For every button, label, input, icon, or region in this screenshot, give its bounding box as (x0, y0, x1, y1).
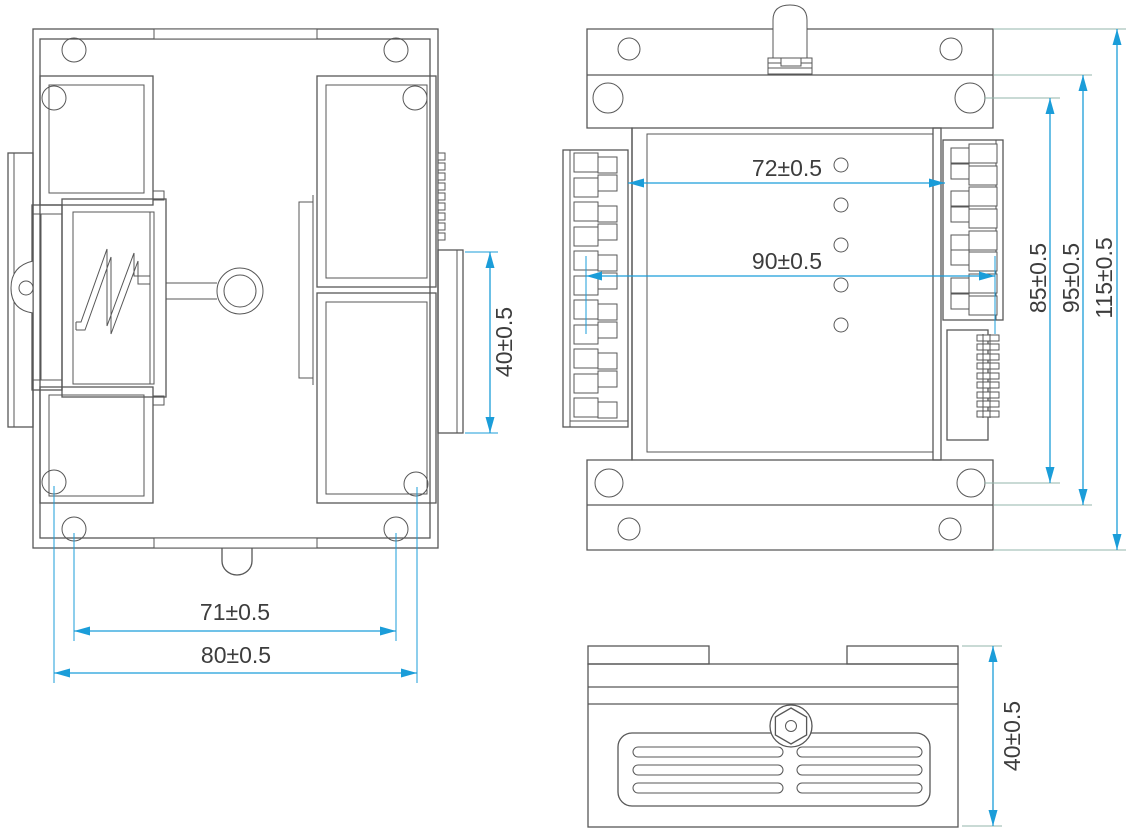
din-foot-right (847, 646, 958, 664)
spring-housing (62, 191, 166, 405)
din-foot-left (588, 646, 709, 664)
dim-label-40-height: 40±0.5 (999, 701, 1025, 771)
antenna-nut (770, 705, 812, 747)
bottom-slot (154, 538, 317, 548)
body-inner (647, 134, 933, 452)
dim-label-80: 80±0.5 (201, 642, 271, 668)
top-slot (154, 29, 317, 39)
dim-label-115: 115±0.5 (1091, 237, 1117, 318)
side-view: 40±0.5 (588, 646, 1025, 827)
led-holes (834, 158, 848, 332)
dip-vent-slots (438, 153, 445, 240)
bottom-view: 71±0.5 80±0.5 40±0.5 (8, 29, 517, 683)
din-rail-clip (8, 153, 62, 427)
vent-grille (618, 733, 930, 806)
din-release-tab (222, 548, 252, 575)
side-view-dimensions: 40±0.5 (962, 646, 1025, 826)
right-rail (299, 195, 313, 385)
top-view-dimensions: 72±0.5 90±0.5 85±0.5 95±0.5 115±0.5 (586, 29, 1126, 550)
drawing-svg: 71±0.5 80±0.5 40±0.5 (0, 0, 1130, 832)
dim-label-85: 85±0.5 (1025, 243, 1051, 313)
dim-label-90: 90±0.5 (752, 248, 822, 274)
mounting-holes (593, 38, 985, 540)
antenna-connector (768, 5, 812, 74)
terminal-block-right (943, 140, 1003, 320)
spring-symbol (76, 249, 150, 334)
flange-outline (587, 29, 993, 550)
side-connector (438, 250, 463, 433)
dim-label-72: 72±0.5 (752, 155, 822, 181)
technical-drawing: 71±0.5 80±0.5 40±0.5 (0, 0, 1130, 832)
bottom-view-dimensions: 71±0.5 80±0.5 40±0.5 (54, 252, 517, 683)
dim-label-71: 71±0.5 (200, 599, 270, 625)
top-view: 72±0.5 90±0.5 85±0.5 95±0.5 115±0.5 (563, 5, 1126, 550)
dim-label-95: 95±0.5 (1058, 243, 1084, 313)
terminal-block-left (563, 150, 628, 427)
center-boss (166, 268, 263, 314)
dim-label-40-connector: 40±0.5 (491, 307, 517, 377)
pin-header-connector (947, 330, 999, 440)
